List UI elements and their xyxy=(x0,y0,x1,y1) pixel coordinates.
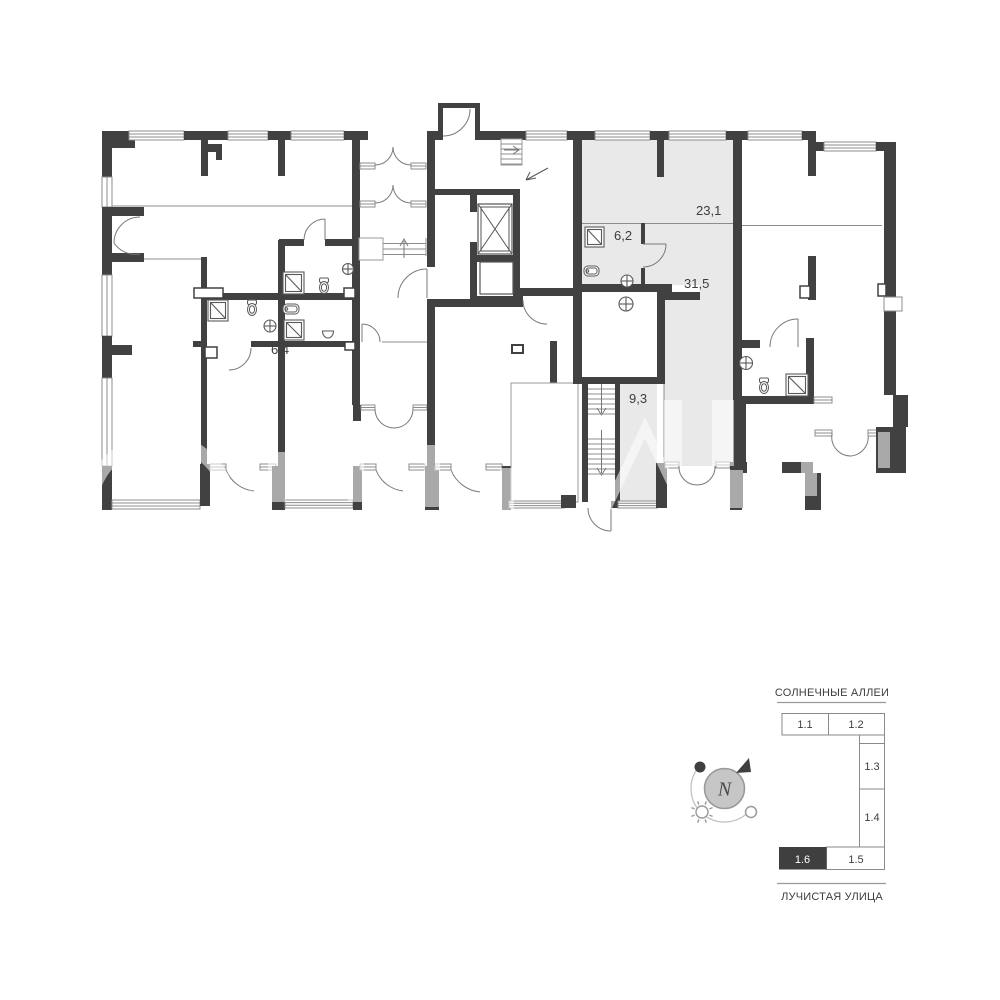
svg-text:1.3: 1.3 xyxy=(864,761,879,773)
svg-text:1.1: 1.1 xyxy=(797,719,812,731)
svg-text:9,3: 9,3 xyxy=(629,391,647,406)
svg-text:6,4: 6,4 xyxy=(271,342,289,357)
svg-text:1.2: 1.2 xyxy=(848,719,863,731)
svg-text:1.6: 1.6 xyxy=(795,854,810,866)
svg-text:31,5: 31,5 xyxy=(684,276,709,291)
svg-text:6,2: 6,2 xyxy=(614,228,632,243)
svg-text:N: N xyxy=(717,779,733,801)
svg-text:23,1: 23,1 xyxy=(696,203,721,218)
svg-text:1.5: 1.5 xyxy=(848,854,863,866)
svg-text:1.4: 1.4 xyxy=(864,812,879,824)
svg-text:СОЛНЕЧНЫЕ АЛЛЕИ: СОЛНЕЧНЫЕ АЛЛЕИ xyxy=(775,687,889,699)
svg-text:ЛУЧИСТАЯ УЛИЦА: ЛУЧИСТАЯ УЛИЦА xyxy=(781,891,883,903)
